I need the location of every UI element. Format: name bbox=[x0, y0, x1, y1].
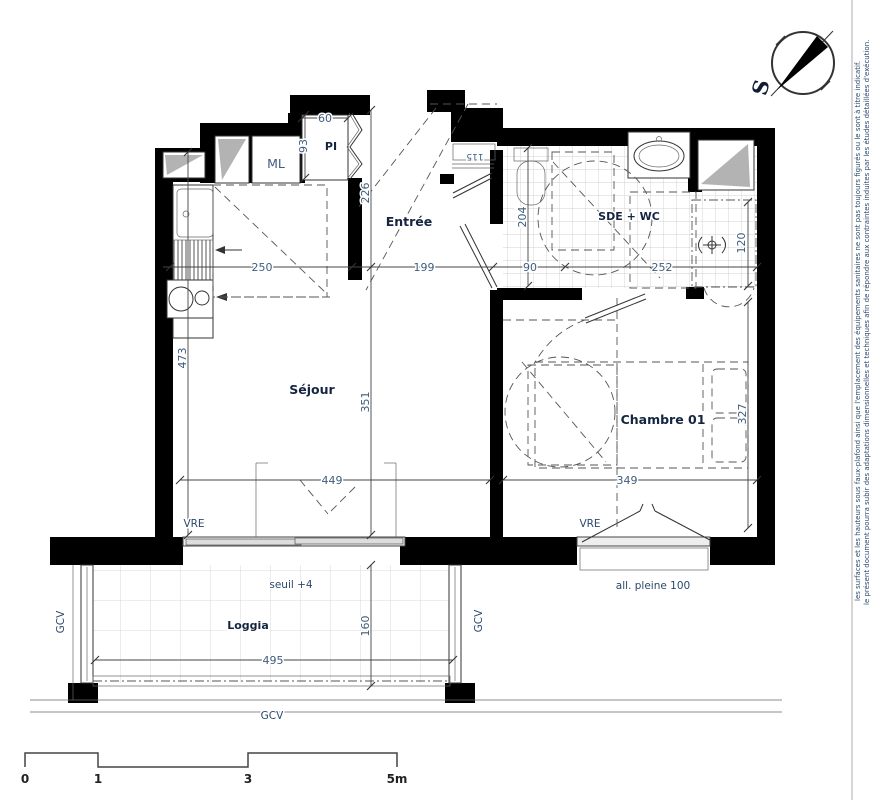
kitchen bbox=[167, 185, 330, 338]
compass-needle-icon bbox=[777, 36, 828, 90]
dim-kitchen-width: 250 bbox=[252, 261, 273, 274]
scale-3: 3 bbox=[244, 772, 252, 786]
dim-entree-depth: 226 bbox=[359, 183, 372, 204]
room-label-entree: Entrée bbox=[386, 214, 433, 229]
dim-sejour-mid-depth: 351 bbox=[359, 392, 372, 413]
room-label-loggia: Loggia bbox=[227, 619, 269, 632]
dim-chambre-depth: 327 bbox=[736, 404, 749, 425]
disclaimer-line2: les surfaces et les hauteurs sous faux-p… bbox=[854, 61, 862, 601]
kitchen-hob bbox=[167, 280, 213, 318]
dim-entree-width: 199 bbox=[414, 261, 435, 274]
disclaimer: le présent document pourra subir des ada… bbox=[852, 0, 871, 800]
dim-sejour-depth: 473 bbox=[176, 348, 189, 369]
floor-plan-drawing: 250 199 90 252 449 349 495 60 115 93 226… bbox=[0, 0, 877, 800]
room-label-sejour: Séjour bbox=[289, 382, 335, 397]
dim-sejour-width: 449 bbox=[322, 474, 343, 487]
scale-5m: 5m bbox=[387, 772, 408, 786]
bedroom-door-swing bbox=[534, 320, 585, 364]
compass-south-label: S bbox=[747, 77, 775, 98]
dim-loggia-depth: 160 bbox=[359, 616, 372, 637]
gcv-bottom-label: GCV bbox=[261, 710, 284, 722]
seuil-label: seuil +4 bbox=[269, 579, 313, 591]
disclaimer-line1: le présent document pourra subir des ada… bbox=[863, 40, 871, 605]
dim-pi-depth: 93 bbox=[297, 139, 310, 153]
dim-sde-w1: 90 bbox=[523, 261, 537, 274]
gcv-left-label: GCV bbox=[55, 610, 67, 633]
bath-door-leaf bbox=[460, 226, 492, 288]
vre-sejour-label: VRE bbox=[183, 518, 204, 530]
allege-label: all. pleine 100 bbox=[616, 580, 690, 592]
gcv-right-label: GCV bbox=[473, 609, 485, 632]
turning-circle-bedroom bbox=[505, 357, 615, 467]
dim-door-width: 115 bbox=[466, 151, 483, 161]
room-label-pi: PI bbox=[325, 140, 337, 153]
bedroom-door-leaf bbox=[586, 299, 646, 323]
dim-sde-depth: 204 bbox=[516, 207, 529, 228]
bedroom-window bbox=[577, 504, 710, 570]
room-label-sde-wc: SDE + WC bbox=[598, 210, 660, 223]
dim-sde-w2: 252 bbox=[652, 261, 673, 274]
floor-plan: 250 199 90 252 449 349 495 60 115 93 226… bbox=[0, 0, 877, 800]
scale-bar: 0 1 3 5m bbox=[21, 753, 408, 786]
scale-1: 1 bbox=[94, 772, 102, 786]
dim-loggia-width: 495 bbox=[263, 654, 284, 667]
compass: S bbox=[747, 31, 834, 98]
vre-chambre-label: VRE bbox=[579, 518, 600, 530]
kitchen-worktop-dashed bbox=[213, 185, 327, 297]
dim-chambre-width: 349 bbox=[617, 474, 638, 487]
scale-0: 0 bbox=[21, 772, 29, 786]
room-label-chambre: Chambre 01 bbox=[621, 412, 706, 427]
room-label-ml: ML bbox=[267, 156, 285, 171]
folding-door bbox=[350, 113, 362, 179]
dim-shower-depth: 120 bbox=[735, 233, 748, 254]
window-bathroom bbox=[698, 140, 754, 190]
window-kitchen-2 bbox=[215, 136, 249, 183]
dim-pi-width: 60 bbox=[318, 112, 332, 125]
